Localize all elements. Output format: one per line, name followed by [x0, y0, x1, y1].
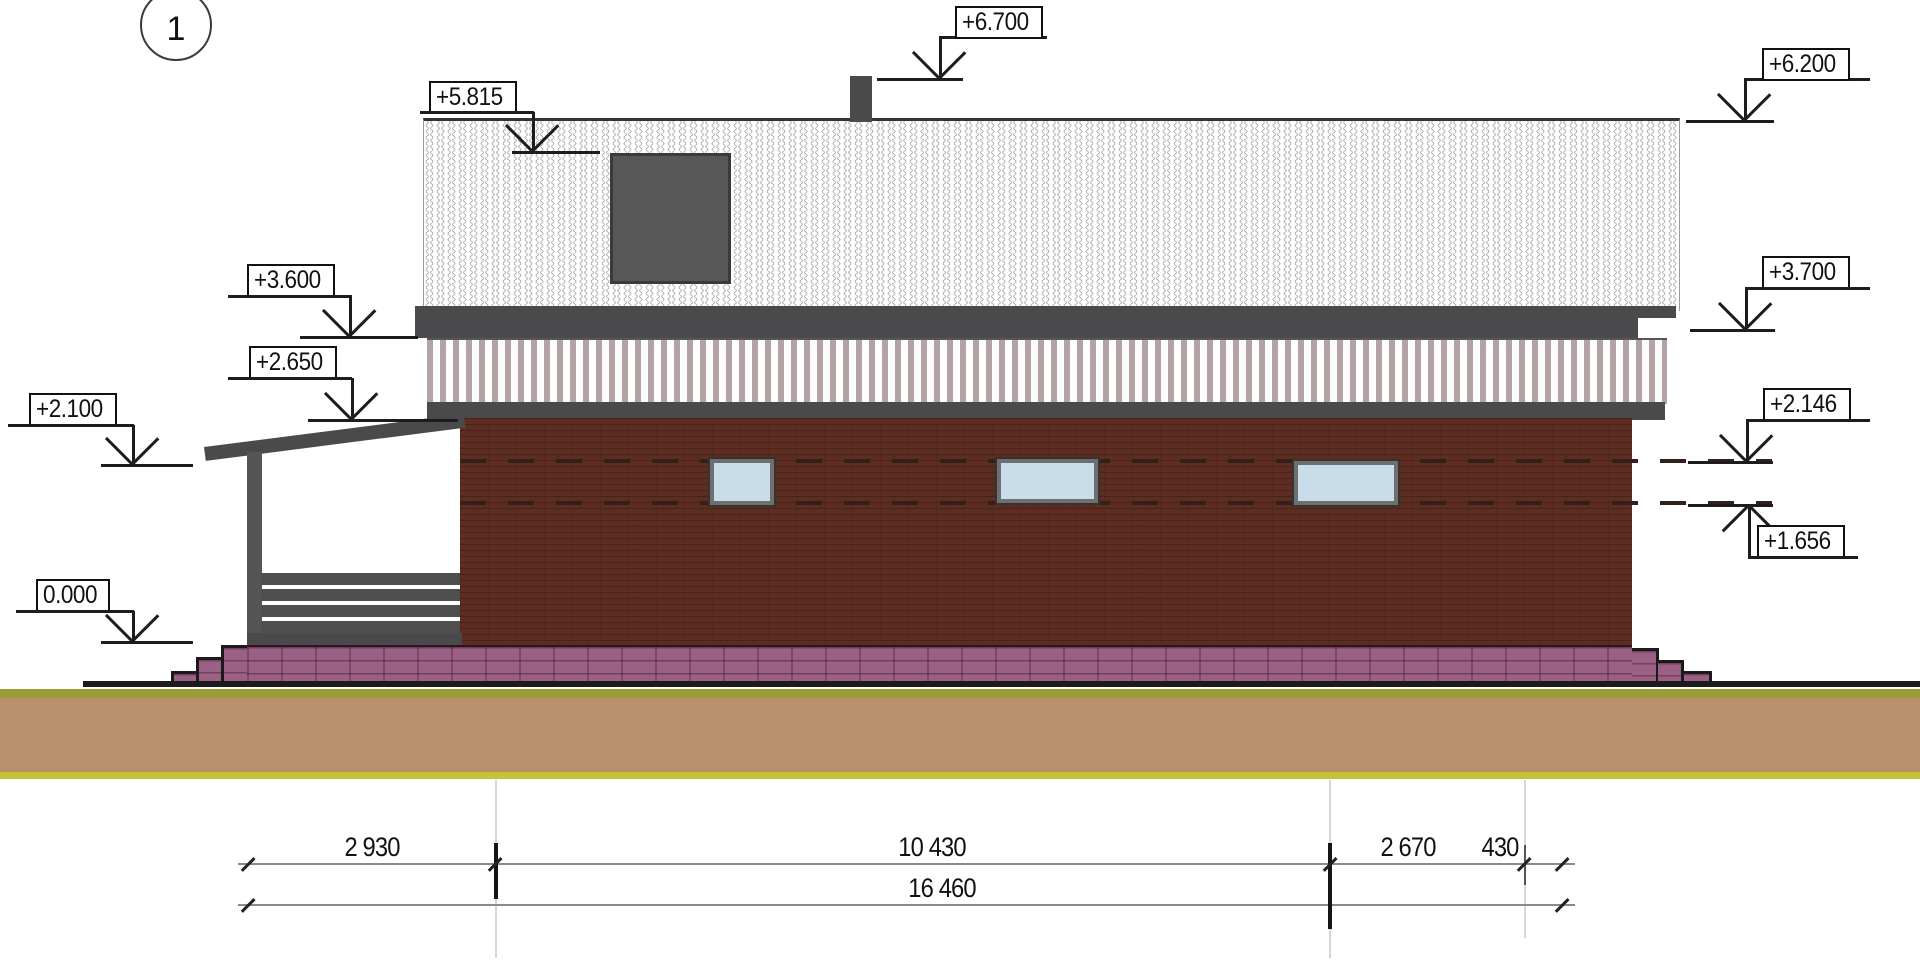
- left-step: [221, 645, 247, 686]
- leader-line: [228, 295, 352, 298]
- level-arrow-icon: [105, 437, 161, 465]
- level-label-box: +3.600: [247, 264, 335, 297]
- level-arrow-icon: [1719, 434, 1775, 462]
- porch-railing-bar: [261, 605, 460, 617]
- soil-band: [0, 698, 1920, 772]
- chimney: [850, 76, 872, 122]
- level-label-box: +2.146: [1763, 388, 1851, 421]
- ground-line: [83, 681, 1920, 687]
- view-marker-number: 1: [167, 10, 186, 48]
- leader-line: [1745, 287, 1870, 290]
- dimension-line-total: [238, 904, 1575, 906]
- level-arrow-icon: [324, 392, 380, 420]
- porch-deck-edge: [247, 633, 462, 645]
- level-label: +2.100: [36, 395, 103, 424]
- level-line: [512, 151, 600, 154]
- level-label: +2.146: [1770, 390, 1837, 419]
- level-label-box: +6.700: [955, 6, 1043, 39]
- porch-railing-bar: [261, 573, 460, 585]
- elevation-drawing: 1: [0, 0, 1920, 963]
- level-label: +3.700: [1769, 258, 1836, 287]
- window-1: [710, 459, 774, 505]
- level-label-box: +5.815: [429, 81, 517, 114]
- window-sill-dashed-line: [460, 501, 1772, 505]
- extension-bar: [494, 843, 498, 899]
- grass-strip: [0, 689, 1920, 698]
- roof-edge-strip: [1638, 306, 1676, 318]
- level-line: [1690, 329, 1775, 332]
- overall-dimension-label: 16 460: [908, 873, 975, 904]
- level-label: 0.000: [43, 581, 97, 610]
- level-arrow-icon: [505, 124, 561, 152]
- dimension-line: [238, 863, 1575, 865]
- level-label-box: +1.656: [1757, 525, 1845, 558]
- level-arrow-icon: [105, 614, 161, 642]
- dimension-label: 2 670: [1380, 832, 1435, 863]
- level-label-box: +3.700: [1762, 256, 1850, 289]
- leader-line: [16, 610, 134, 613]
- brick-wall: [460, 418, 1632, 645]
- level-arrow-icon: [1718, 302, 1774, 330]
- level-line: [1688, 461, 1773, 464]
- leader-line: [420, 111, 534, 114]
- level-line: [101, 641, 193, 644]
- porch-railing-bar: [261, 621, 460, 633]
- level-label: +6.200: [1769, 50, 1836, 79]
- level-label: +2.650: [256, 348, 323, 377]
- dimension-label: 10 430: [898, 832, 965, 863]
- level-label-box: +2.100: [29, 393, 117, 426]
- clerestory-band: [427, 338, 1667, 404]
- leader-line: [8, 424, 134, 427]
- porch-railing-bar: [261, 589, 460, 601]
- level-line: [101, 464, 193, 467]
- level-label-box: +6.200: [1762, 48, 1850, 81]
- level-label: +3.600: [254, 266, 321, 295]
- level-label: +5.815: [436, 83, 503, 112]
- porch-post: [247, 452, 262, 645]
- leader-line: [1744, 80, 1747, 121]
- extension-bar: [1328, 843, 1332, 929]
- window-2: [997, 459, 1098, 503]
- leader-line: [1748, 556, 1858, 559]
- level-label: +1.656: [1764, 527, 1831, 556]
- dimension-label: 430: [1481, 832, 1518, 863]
- soil-bottom-strip: [0, 772, 1920, 779]
- leader-line: [939, 38, 942, 79]
- window-3: [1294, 461, 1398, 505]
- stone-plinth: [247, 645, 1632, 686]
- level-label: +6.700: [962, 8, 1029, 37]
- eaves-fascia: [415, 306, 1638, 338]
- leader-line: [228, 377, 352, 380]
- level-line: [300, 336, 418, 339]
- level-label-box: +2.650: [249, 346, 337, 379]
- roof-skylight: [610, 153, 731, 284]
- level-line: [308, 419, 458, 422]
- level-arrow-icon: [322, 309, 378, 337]
- window-head-dashed-line: [460, 459, 1772, 463]
- view-marker-circle: 1: [140, 0, 212, 61]
- dimension-label: 2 930: [344, 832, 399, 863]
- leader-line: [1748, 505, 1751, 556]
- level-label-box: 0.000: [36, 579, 110, 612]
- leader-line: [1746, 419, 1870, 422]
